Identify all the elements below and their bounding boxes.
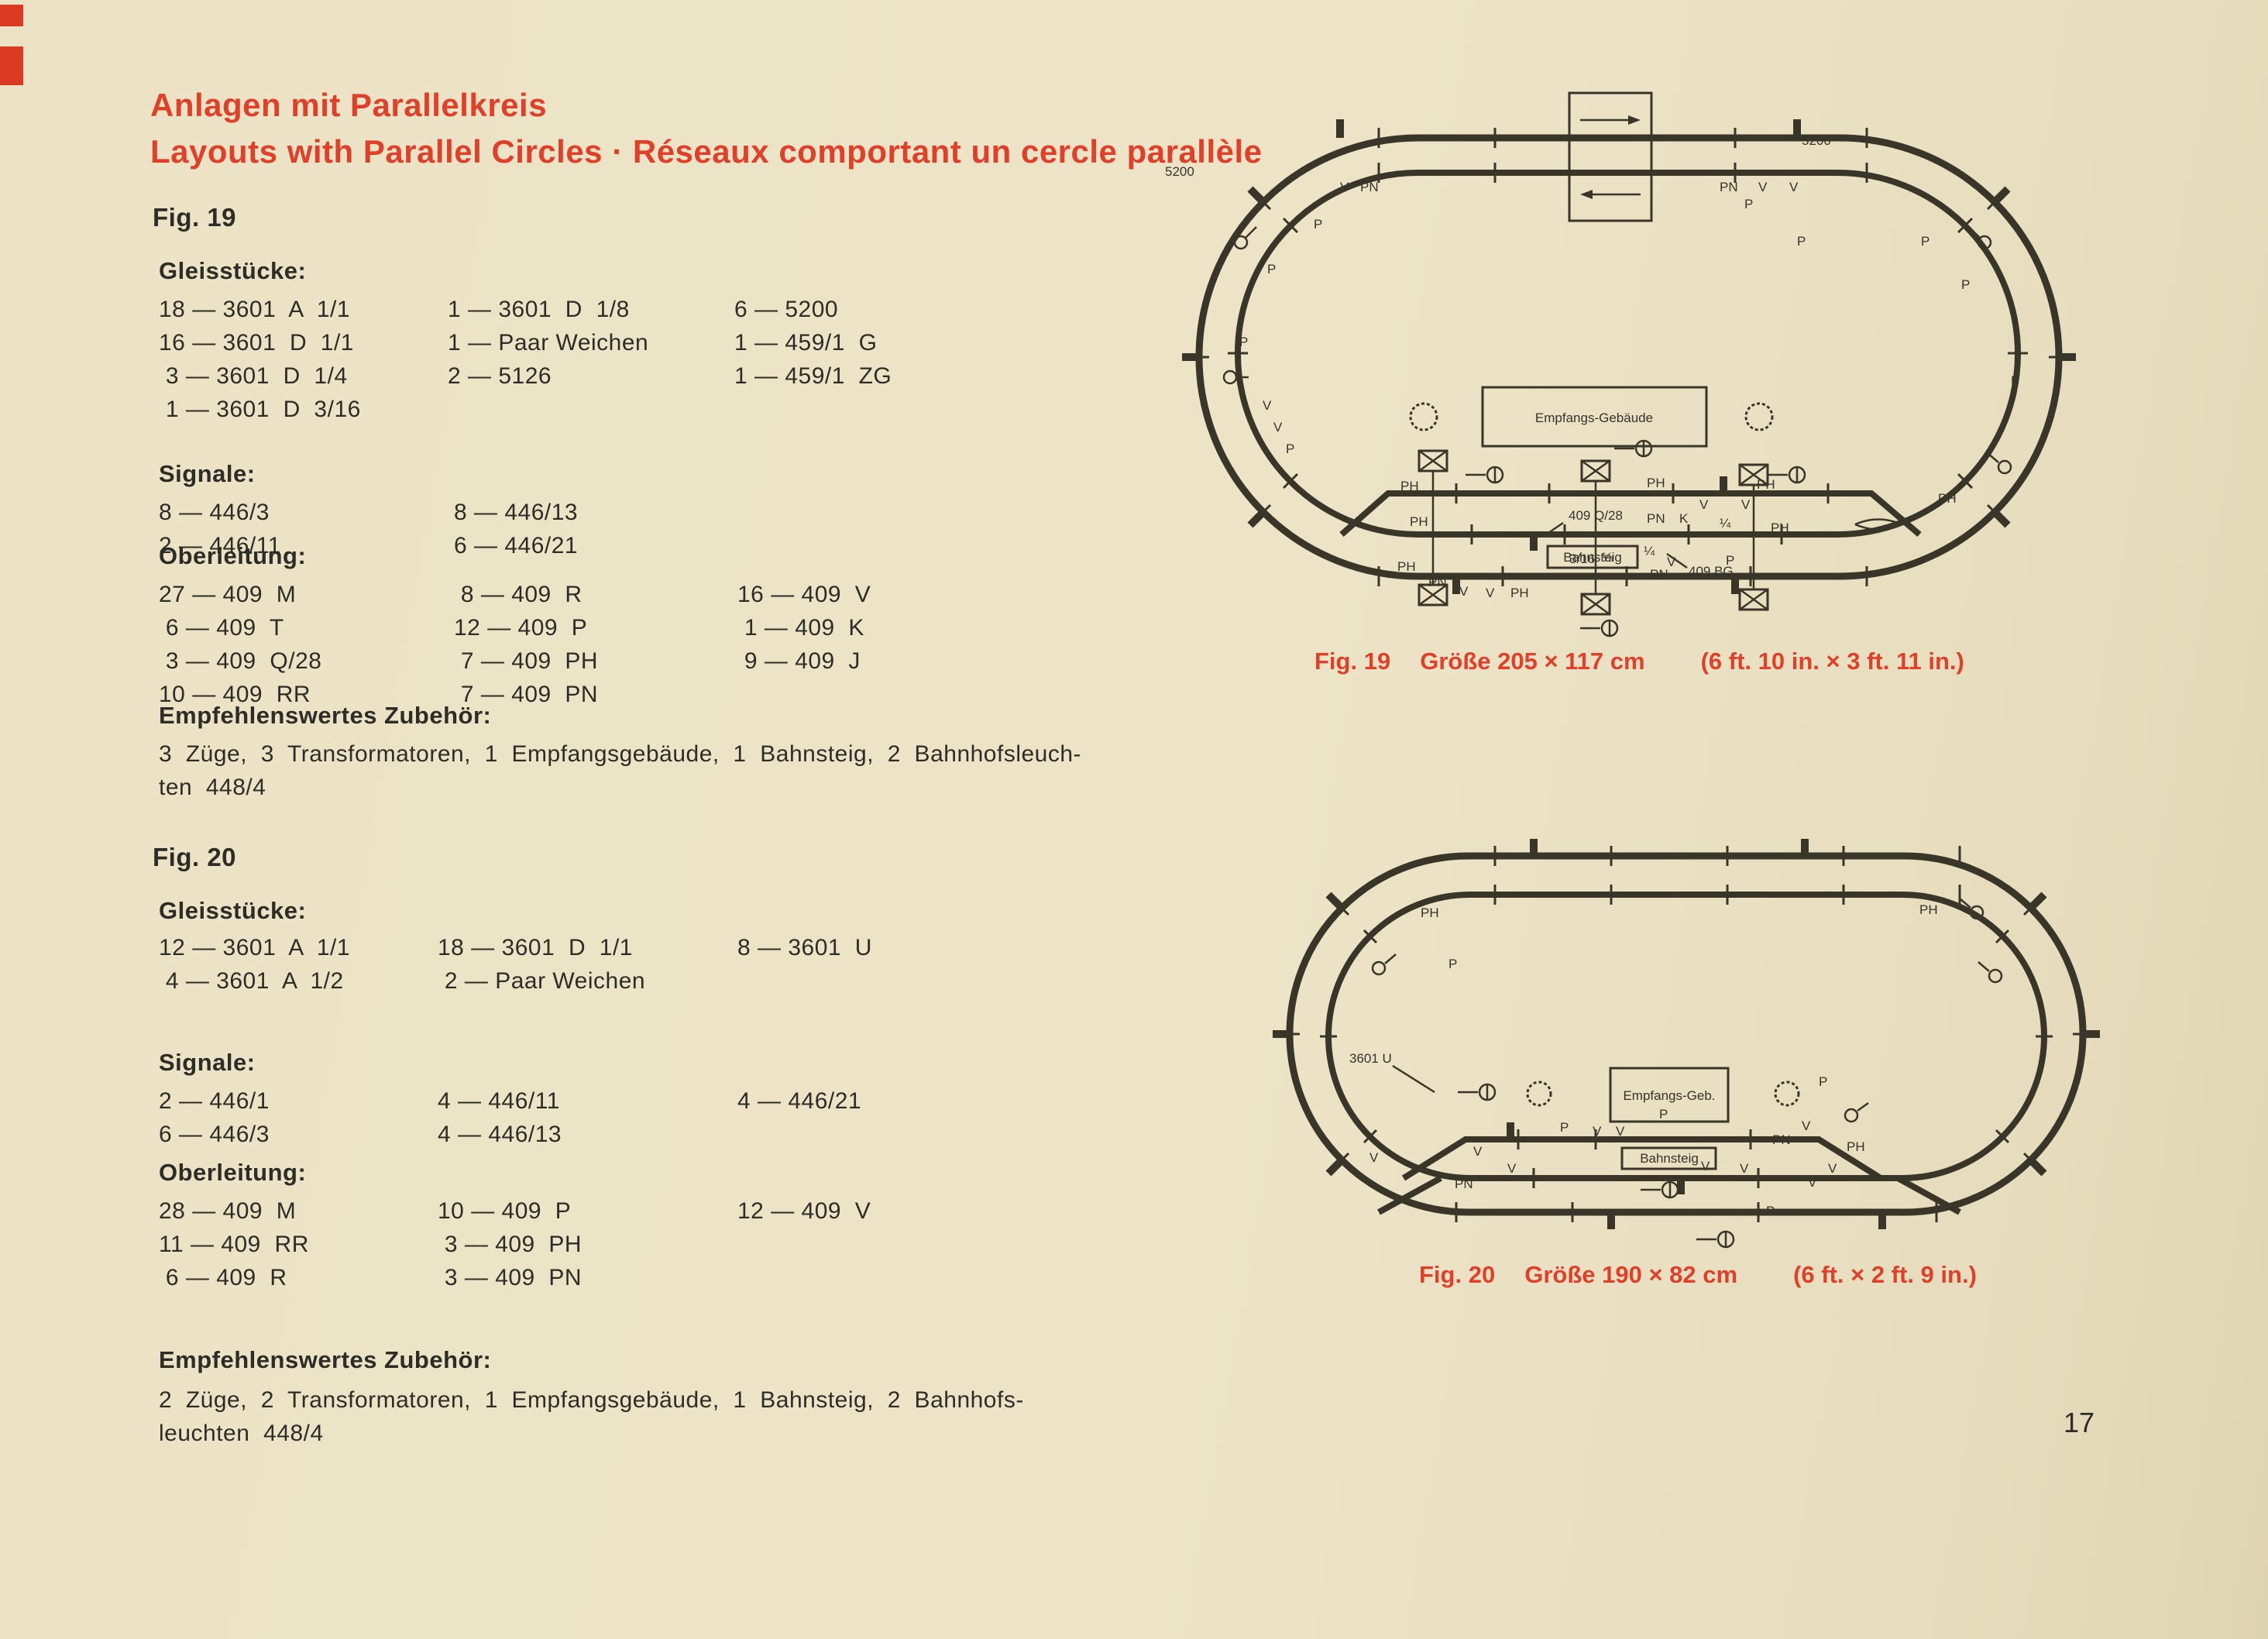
fig20-label: Fig. 20 [153, 843, 236, 872]
diagram-label: PN [1647, 511, 1665, 526]
caption-imperial: (6 ft. × 2 ft. 9 in.) [1793, 1261, 1977, 1288]
list-item: 3 — 409 PN [438, 1261, 582, 1294]
diagram-label: V [1699, 497, 1709, 512]
caption-fig: Fig. 20 [1419, 1261, 1495, 1288]
diagram-label: V [1828, 1161, 1837, 1176]
diagram-label: P [1286, 442, 1294, 456]
list-item: 6 — 409 T [159, 611, 321, 644]
list-item: 2 — 446/1 [159, 1084, 270, 1118]
diagram-label: V [1369, 1150, 1379, 1165]
page-number: 17 [2064, 1407, 2094, 1439]
list-item: 3 — 409 Q/28 [159, 644, 321, 678]
station-building-label: Empfangs-Gebäude [1535, 411, 1653, 425]
rail-joint-ticks [1280, 846, 2093, 1222]
diagram-label: V [1740, 1161, 1749, 1176]
diagram-label: V [1701, 1159, 1710, 1173]
diagram-label: ⅛ [1602, 550, 1613, 565]
fig20-track-diagram: Empfangs-Geb. Bahnsteig [1263, 837, 2107, 1255]
station-building: Empfangs-Gebäude [1483, 387, 1706, 446]
signal-icon [1458, 1084, 1495, 1100]
station-building: Empfangs-Geb. [1610, 1068, 1728, 1122]
diagram-label: PN [1360, 180, 1379, 194]
list-item: 1 — 3601 D 1/8 [448, 293, 648, 326]
diagram-label: PH [1410, 514, 1428, 529]
list-item: leuchten 448/4 [159, 1417, 1024, 1450]
fig19-zubehoer-text: 3 Züge, 3 Transformatoren, 1 Empfangsgeb… [159, 737, 1081, 804]
diagram-label: 5200 [1802, 133, 1831, 148]
diagram-label: P [1961, 277, 1970, 292]
station-building-label: Empfangs-Geb. [1623, 1088, 1715, 1103]
diagram-label: ¼ [1720, 516, 1731, 531]
signal-icon [1373, 954, 1396, 974]
fig19-gleis-col3: 6 — 52001 — 459/1 G1 — 459/1 ZG [734, 293, 892, 393]
list-item: 27 — 409 M [159, 578, 321, 611]
signal-icon [1614, 441, 1651, 456]
diagram-label: PN [1428, 575, 1447, 589]
diagram-label: ¼ [1644, 544, 1655, 558]
diagram-label: V [1593, 1124, 1602, 1139]
fig20-diagram-labels: PHPHP3601 UPVVPVVVPNVVPNVPPHVVP [1349, 902, 1938, 1218]
diagram-label: PH [1510, 586, 1529, 600]
diagram-label: V [1808, 1175, 1817, 1190]
list-item: 1 — 409 K [737, 611, 871, 644]
diagram-label: V [1741, 497, 1751, 512]
diagram-label: 409 Q/28 [1569, 508, 1623, 523]
list-item: 4 — 446/21 [737, 1084, 861, 1118]
list-item: 1 — 459/1 ZG [734, 359, 892, 393]
fig20-signale-col1: 2 — 446/16 — 446/3 [159, 1084, 270, 1151]
diagram-label: V [1667, 555, 1676, 569]
signal-icon [1696, 1232, 1734, 1247]
diagram-label: PH [1421, 905, 1439, 920]
list-item: 4 — 446/13 [438, 1118, 562, 1151]
list-item: 12 — 409 V [737, 1194, 871, 1228]
diagram-label: PH [1771, 521, 1789, 535]
fig20-oberleitung-heading: Oberleitung: [159, 1159, 306, 1187]
diagram-label: PN [1650, 567, 1668, 582]
list-item: 3 — 3601 D 1/4 [159, 359, 361, 393]
fig20-gleis-heading: Gleisstücke: [159, 897, 306, 925]
fig20-gleis-col3: 8 — 3601 U [737, 931, 872, 964]
fig20-signale-col2: 4 — 446/114 — 446/13 [438, 1084, 562, 1151]
diagram-label: V [1459, 584, 1469, 599]
fig20-oberleitung-col2: 10 — 409 P 3 — 409 PH 3 — 409 PN [438, 1194, 582, 1294]
signal-icon [1988, 453, 2011, 473]
list-item: 8 — 446/3 [159, 496, 281, 529]
list-item: 16 — 409 V [737, 578, 871, 611]
signal-icon [1580, 620, 1617, 636]
station-lamp-icon [1527, 1082, 1551, 1105]
list-item: 6 — 5200 [734, 293, 892, 326]
fig20-signale-col3: 4 — 446/21 [737, 1084, 861, 1118]
diagram-label: V [1616, 1124, 1625, 1139]
caption-size: Größe 190 × 82 cm [1524, 1261, 1737, 1288]
diagram-label: PH [1757, 477, 1775, 492]
fig20-zubehoer-text: 2 Züge, 2 Transformatoren, 1 Empfangsgeb… [159, 1383, 1024, 1450]
diagram-label: PN [1720, 180, 1738, 194]
diagram-label: P [1744, 197, 1753, 211]
caption-fig: Fig. 19 [1314, 648, 1390, 675]
list-item: 18 — 3601 A 1/1 [159, 293, 361, 326]
signal-icon [1978, 962, 2002, 982]
diagram-label: PH [1400, 479, 1419, 493]
diagram-label: PH [1919, 902, 1938, 917]
list-item: 1 — 3601 D 3/16 [159, 393, 361, 426]
station-lamp-icon [1775, 1082, 1799, 1105]
bleed-mark [0, 46, 23, 85]
signal-icons [1373, 899, 2002, 1247]
list-item: 3 Züge, 3 Transformatoren, 1 Empfangsgeb… [159, 737, 1081, 771]
list-item: 6 — 446/21 [454, 529, 578, 562]
arrow-left-icon [1580, 190, 1593, 199]
diagram-label: P [1921, 234, 1930, 249]
diagram-label: P [1766, 1204, 1775, 1218]
diagram-label: PH [1847, 1139, 1865, 1154]
diagram-label: PN [1772, 1132, 1791, 1147]
station-tracks [1342, 493, 1919, 534]
inner-loop-track [1238, 173, 2018, 534]
fig19-track-diagram: Empfangs-Gebäude Bahnsteig [1146, 43, 2107, 662]
diagram-label: V [1507, 1161, 1517, 1176]
diagram-label: P [1448, 957, 1457, 971]
diagram-label: P [1726, 553, 1734, 568]
caption-size: Größe 205 × 117 cm [1420, 648, 1644, 675]
fig19-gleis-col2: 1 — 3601 D 1/81 — Paar Weichen2 — 5126 [448, 293, 648, 393]
diagram-label: P [1797, 234, 1806, 249]
page-subtitle: Layouts with Parallel Circles · Réseaux … [150, 133, 1263, 170]
list-item: 6 — 409 R [159, 1261, 309, 1294]
diagram-label: P [1819, 1074, 1827, 1089]
diagram-label: V [1340, 180, 1349, 194]
fig19-oberleitung-col1: 27 — 409 M 6 — 409 T 3 — 409 Q/2810 — 40… [159, 578, 321, 711]
bridge [1569, 93, 1651, 221]
fig19-label: Fig. 19 [153, 203, 236, 232]
list-item: 1 — 459/1 G [734, 326, 892, 359]
list-item: 4 — 446/11 [438, 1084, 562, 1118]
inner-loop-track [1328, 895, 2044, 1178]
list-item: 12 — 409 P [454, 611, 598, 644]
mast-stubs [1182, 119, 2076, 594]
signal-icon [1845, 1103, 1868, 1122]
diagram-label: P [1659, 1107, 1668, 1122]
list-item: 9 — 409 J [737, 644, 871, 678]
label-pointer [1393, 1066, 1435, 1092]
list-item: ten 448/4 [159, 771, 1081, 804]
diagram-label: PH [1647, 476, 1665, 490]
diagram-label: PN [1455, 1177, 1473, 1191]
diagram-label: V [1263, 398, 1272, 413]
diagram-label: 3/16 [1569, 551, 1595, 566]
fig19-gleis-col1: 18 — 3601 A 1/116 — 3601 D 1/1 3 — 3601 … [159, 293, 361, 426]
diagram-label: V [1473, 1144, 1483, 1159]
diagram-label: P [1267, 262, 1276, 277]
platform-label: Bahnsteig [1640, 1151, 1699, 1166]
fig19-gleis-heading: Gleisstücke: [159, 257, 306, 285]
signal-icon [1641, 1182, 1678, 1197]
diagram-label: PH [1938, 491, 1957, 506]
list-item: 10 — 409 P [438, 1194, 582, 1228]
diagram-label: V [1789, 180, 1799, 194]
diagram-label: P [2011, 373, 2019, 388]
fig19-diagram-labels: 52005200VPNPPPVVPPNVVPPPPPPHPHPHPNVVPH40… [1165, 133, 2019, 600]
diagram-label: P [1314, 217, 1322, 232]
catalog-page: Anlagen mit Parallelkreis Layouts with P… [0, 0, 2268, 1639]
list-item: 2 Züge, 2 Transformatoren, 1 Empfangsgeb… [159, 1383, 1024, 1417]
fig19-signale-col2: 8 — 446/136 — 446/21 [454, 496, 578, 562]
list-item: 11 — 409 RR [159, 1228, 309, 1261]
fig20-oberleitung-col1: 28 — 409 M11 — 409 RR 6 — 409 R [159, 1194, 309, 1294]
diagram-label: PH [1397, 559, 1416, 574]
diagram-label: 5200 [1165, 164, 1194, 179]
diagram-label: V [1273, 420, 1283, 435]
list-item: 3 — 409 PH [438, 1228, 582, 1261]
station-lamp-icon [1746, 404, 1772, 430]
fig19-oberleitung-heading: Oberleitung: [159, 542, 306, 570]
list-item: 12 — 3601 A 1/1 [159, 931, 350, 964]
list-item: 28 — 409 M [159, 1194, 309, 1228]
list-item: 4 — 3601 A 1/2 [159, 964, 350, 998]
list-item: 2 — Paar Weichen [438, 964, 645, 998]
fig19-zubehoer-heading: Empfehlenswertes Zubehör: [159, 702, 491, 730]
fig19-caption: Fig. 19Größe 205 × 117 cm(6 ft. 10 in. ×… [1314, 648, 1964, 675]
fig20-gleis-col1: 12 — 3601 A 1/1 4 — 3601 A 1/2 [159, 931, 350, 998]
list-item: 16 — 3601 D 1/1 [159, 326, 361, 359]
diagram-label: P [1560, 1120, 1569, 1135]
fig19-oberleitung-col2: 8 — 409 R12 — 409 P 7 — 409 PH 7 — 409 P… [454, 578, 598, 711]
diagram-label: V [1486, 586, 1495, 600]
diagram-label: V [1802, 1118, 1811, 1133]
rail-joint-ticks [1189, 128, 2069, 586]
signal-icon [1466, 467, 1503, 483]
list-item: 2 — 5126 [448, 359, 648, 393]
diagram-label: 3601 U [1349, 1051, 1392, 1066]
diagram-label: V [1758, 180, 1768, 194]
fig20-caption: Fig. 20Größe 190 × 82 cm(6 ft. × 2 ft. 9… [1419, 1261, 1977, 1289]
fig20-zubehoer-heading: Empfehlenswertes Zubehör: [159, 1346, 491, 1374]
list-item: 8 — 446/13 [454, 496, 578, 529]
list-item: 18 — 3601 D 1/1 [438, 931, 645, 964]
station-lamp-icon [1411, 404, 1437, 430]
fig20-gleis-col2: 18 — 3601 D 1/1 2 — Paar Weichen [438, 931, 645, 998]
bleed-mark [0, 5, 23, 26]
page-title: Anlagen mit Parallelkreis [150, 87, 547, 124]
list-item: 1 — Paar Weichen [448, 326, 648, 359]
fig19-oberleitung-col3: 16 — 409 V 1 — 409 K 9 — 409 J [737, 578, 871, 678]
fig20-signale-heading: Signale: [159, 1049, 256, 1077]
arrow-right-icon [1628, 115, 1641, 125]
fig19-signale-heading: Signale: [159, 460, 256, 488]
fig20-oberleitung-col3: 12 — 409 V [737, 1194, 871, 1228]
list-item: 8 — 3601 U [737, 931, 872, 964]
list-item: 8 — 409 R [454, 578, 598, 611]
caption-imperial: (6 ft. 10 in. × 3 ft. 11 in.) [1701, 648, 1964, 675]
list-item: 6 — 446/3 [159, 1118, 270, 1151]
diagram-label: P [1239, 335, 1248, 349]
list-item: 7 — 409 PH [454, 644, 598, 678]
diagram-label: K [1679, 511, 1689, 526]
